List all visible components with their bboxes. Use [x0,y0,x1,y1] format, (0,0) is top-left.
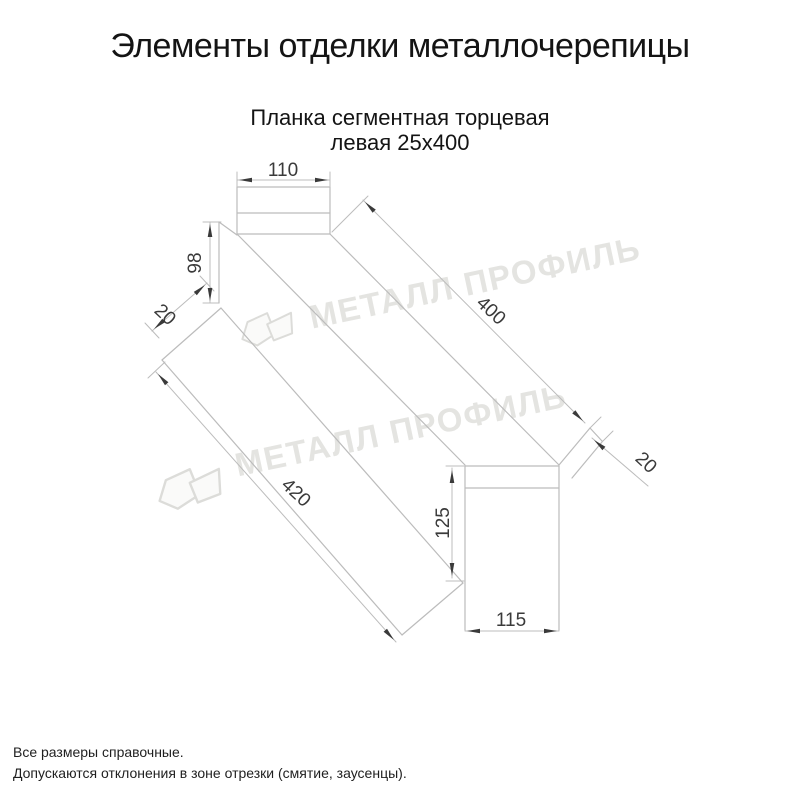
hem-flap-end-edge [590,428,602,441]
hem-flap-fold-edge [559,428,590,465]
arrow-115-right [544,629,557,634]
top-face-rect [237,187,330,234]
arrow-400-nw [365,202,376,213]
ext-20-left-2 [145,323,159,338]
arrow-98-bottom [208,288,213,301]
dim-label-end-width: 115 [496,610,526,631]
arrow-420-nw [158,374,168,385]
flange-band-near-end-edge [402,583,463,635]
ext-20-right-1 [590,417,601,428]
footer-note-1: Все размеры справочные. [13,742,407,763]
arrow-98-top [208,224,213,237]
arrow-125-top [450,470,455,483]
watermark-bottom: МЕТАЛЛ ПРОФИЛЬ [152,377,573,512]
watermark-top: МЕТАЛЛ ПРОФИЛЬ [237,229,644,350]
watermark-text: МЕТАЛЛ ПРОФИЛЬ [306,229,644,335]
arrow-115-left [467,629,480,634]
dim-label-bottom-length: 420 [277,474,315,511]
watermark-text: МЕТАЛЛ ПРОФИЛЬ [232,377,570,483]
arrow-110-left [239,178,252,183]
arrow-20-left-ne [194,285,205,295]
footer-note-2: Допускаются отклонения в зоне отрезки (с… [13,763,407,784]
dim-label-end-height: 125 [433,507,454,539]
dim-label-left-flange-height: 98 [185,252,206,273]
arrow-110-right [315,178,328,183]
dimension-labels: 110 98 20 400 20 420 125 115 [150,160,661,631]
arrow-400-se [572,410,583,421]
hem-flap-outer-edge [572,442,602,478]
far-end-connector [219,222,237,235]
dim-line-420 [156,372,396,642]
technical-drawing: МЕТАЛЛ ПРОФИЛЬ МЕТАЛЛ ПРОФИЛЬ [0,0,800,800]
ext-20-right-2 [602,431,613,442]
dim-label-right-hem: 20 [631,448,661,478]
dim-label-left-hem: 20 [150,300,180,330]
arrow-420-se [384,629,394,640]
ext-400-nw [332,196,368,232]
dim-label-top-width: 110 [268,160,298,181]
metall-profil-logo [238,308,296,348]
ext-420-nw [148,362,165,378]
footer-notes: Все размеры справочные. Допускаются откл… [13,742,407,783]
drawing-page: Элементы отделки металлочерепицы Планка … [0,0,800,800]
metall-profil-logo [154,463,225,512]
